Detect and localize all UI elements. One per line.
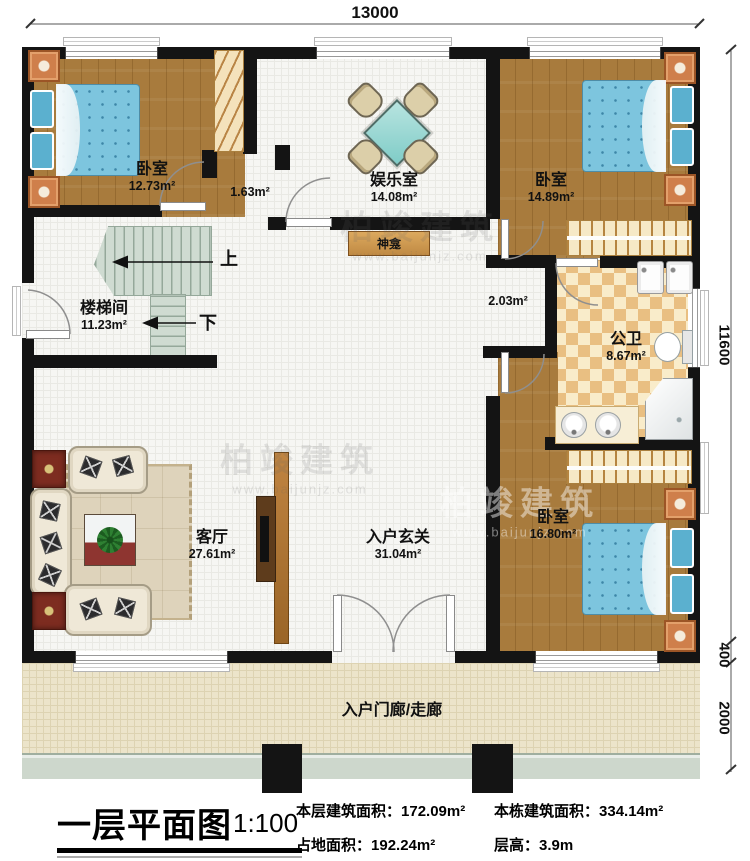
nightstand bbox=[664, 488, 696, 520]
page-title: 一层平面图 bbox=[57, 798, 232, 847]
wall bbox=[658, 651, 700, 663]
wall bbox=[486, 396, 500, 655]
room-label-bathroom: 公卫 8.67m² bbox=[606, 331, 646, 363]
wall bbox=[22, 355, 217, 368]
porch-column bbox=[472, 744, 513, 793]
window-sill bbox=[527, 37, 663, 46]
window bbox=[529, 47, 661, 59]
sofa bbox=[68, 446, 148, 494]
room-label-foyer: 入户玄关 31.04m² bbox=[366, 529, 430, 561]
tv-partition bbox=[274, 452, 289, 644]
wardrobe bbox=[566, 220, 692, 256]
dimension-side: 11600 bbox=[716, 325, 733, 366]
wall bbox=[22, 651, 75, 663]
door-sill bbox=[12, 286, 21, 336]
stairs-upper-flight bbox=[94, 226, 212, 296]
door-leaf bbox=[160, 202, 206, 211]
room-label-vestibule: 1.63m² bbox=[230, 185, 270, 199]
dimension-tick bbox=[726, 765, 736, 774]
dimension-porch: 2000 bbox=[716, 701, 733, 734]
title-underline bbox=[57, 848, 302, 853]
dimension-tick bbox=[26, 19, 35, 28]
stat-building-area: 本栋建筑面积：334.14m² bbox=[494, 800, 663, 821]
door-leaf bbox=[446, 595, 455, 652]
wall bbox=[268, 217, 286, 230]
scale-label: 1:100 bbox=[233, 808, 298, 839]
nightstand bbox=[664, 174, 696, 206]
tv bbox=[260, 516, 269, 562]
room-label-porch: 入户门廊/走廊 bbox=[342, 702, 442, 720]
room-label-corridor: 2.03m² bbox=[488, 294, 528, 308]
dimension-sill: 400 bbox=[716, 642, 733, 667]
wall bbox=[545, 268, 557, 358]
title-underline bbox=[57, 856, 302, 858]
stat-footprint-area: 占地面积：192.24m² bbox=[296, 834, 435, 855]
window-sill bbox=[700, 442, 709, 514]
sofa bbox=[30, 488, 72, 596]
sink bbox=[595, 412, 621, 438]
door-leaf bbox=[333, 595, 342, 652]
door-leaf bbox=[286, 218, 332, 227]
wall bbox=[330, 217, 490, 230]
door-leaf bbox=[556, 258, 598, 267]
room-label-stairwell: 楼梯间 11.23m² bbox=[80, 300, 128, 332]
washing-machine bbox=[637, 261, 664, 294]
room-label-bedroom-br: 卧室 16.80m² bbox=[530, 509, 577, 541]
porch-column bbox=[262, 744, 302, 793]
stat-floor-height: 层高：3.9m bbox=[494, 834, 573, 855]
room-label-bedroom-tr: 卧室 14.89m² bbox=[528, 172, 575, 204]
floor-plan: 神龛 bbox=[0, 0, 750, 861]
side-table bbox=[32, 450, 66, 488]
bed bbox=[28, 84, 140, 176]
door-leaf bbox=[501, 352, 509, 393]
nightstand bbox=[28, 176, 60, 208]
window bbox=[316, 47, 450, 59]
dimension-tick bbox=[726, 45, 736, 54]
sofa bbox=[64, 584, 152, 636]
window-sill bbox=[314, 37, 452, 46]
bed bbox=[582, 518, 694, 620]
room-label-bedroom-tl: 卧室 12.73m² bbox=[129, 161, 176, 193]
wardrobe bbox=[566, 450, 692, 484]
stairs-lower-flight bbox=[150, 294, 186, 358]
wardrobe bbox=[214, 50, 244, 152]
wall bbox=[486, 255, 556, 268]
door-leaf bbox=[26, 330, 70, 339]
wall bbox=[243, 47, 257, 154]
window-sill bbox=[63, 37, 160, 46]
dimension-top: 13000 bbox=[351, 3, 398, 23]
window bbox=[75, 651, 228, 663]
window-sill bbox=[700, 290, 709, 366]
shrine-shelf: 神龛 bbox=[348, 231, 430, 256]
bed bbox=[582, 80, 694, 172]
wall bbox=[228, 651, 332, 663]
stair-up-label: 上 bbox=[220, 245, 238, 271]
room-label-entertainment: 娱乐室 14.08m² bbox=[370, 172, 418, 204]
window bbox=[65, 47, 158, 59]
wall bbox=[202, 150, 217, 178]
plant bbox=[97, 527, 123, 553]
shrine-label: 神龛 bbox=[377, 235, 401, 252]
wall bbox=[486, 346, 500, 354]
window bbox=[535, 651, 658, 663]
dimension-tick bbox=[695, 19, 704, 28]
stat-floor-area: 本层建筑面积：172.09m² bbox=[296, 800, 465, 821]
sink bbox=[561, 412, 587, 438]
stair-down-label: 下 bbox=[199, 309, 217, 335]
wall bbox=[486, 47, 500, 219]
side-table bbox=[32, 592, 66, 630]
wall bbox=[275, 145, 290, 170]
washing-machine bbox=[666, 261, 693, 294]
room-label-living-room: 客厅 27.61m² bbox=[189, 529, 236, 561]
door-leaf bbox=[501, 219, 509, 259]
nightstand bbox=[28, 50, 60, 82]
window-sill bbox=[533, 663, 660, 672]
toilet bbox=[654, 328, 694, 366]
nightstand bbox=[664, 620, 696, 652]
porch-step bbox=[22, 753, 700, 779]
window-sill bbox=[73, 663, 230, 672]
